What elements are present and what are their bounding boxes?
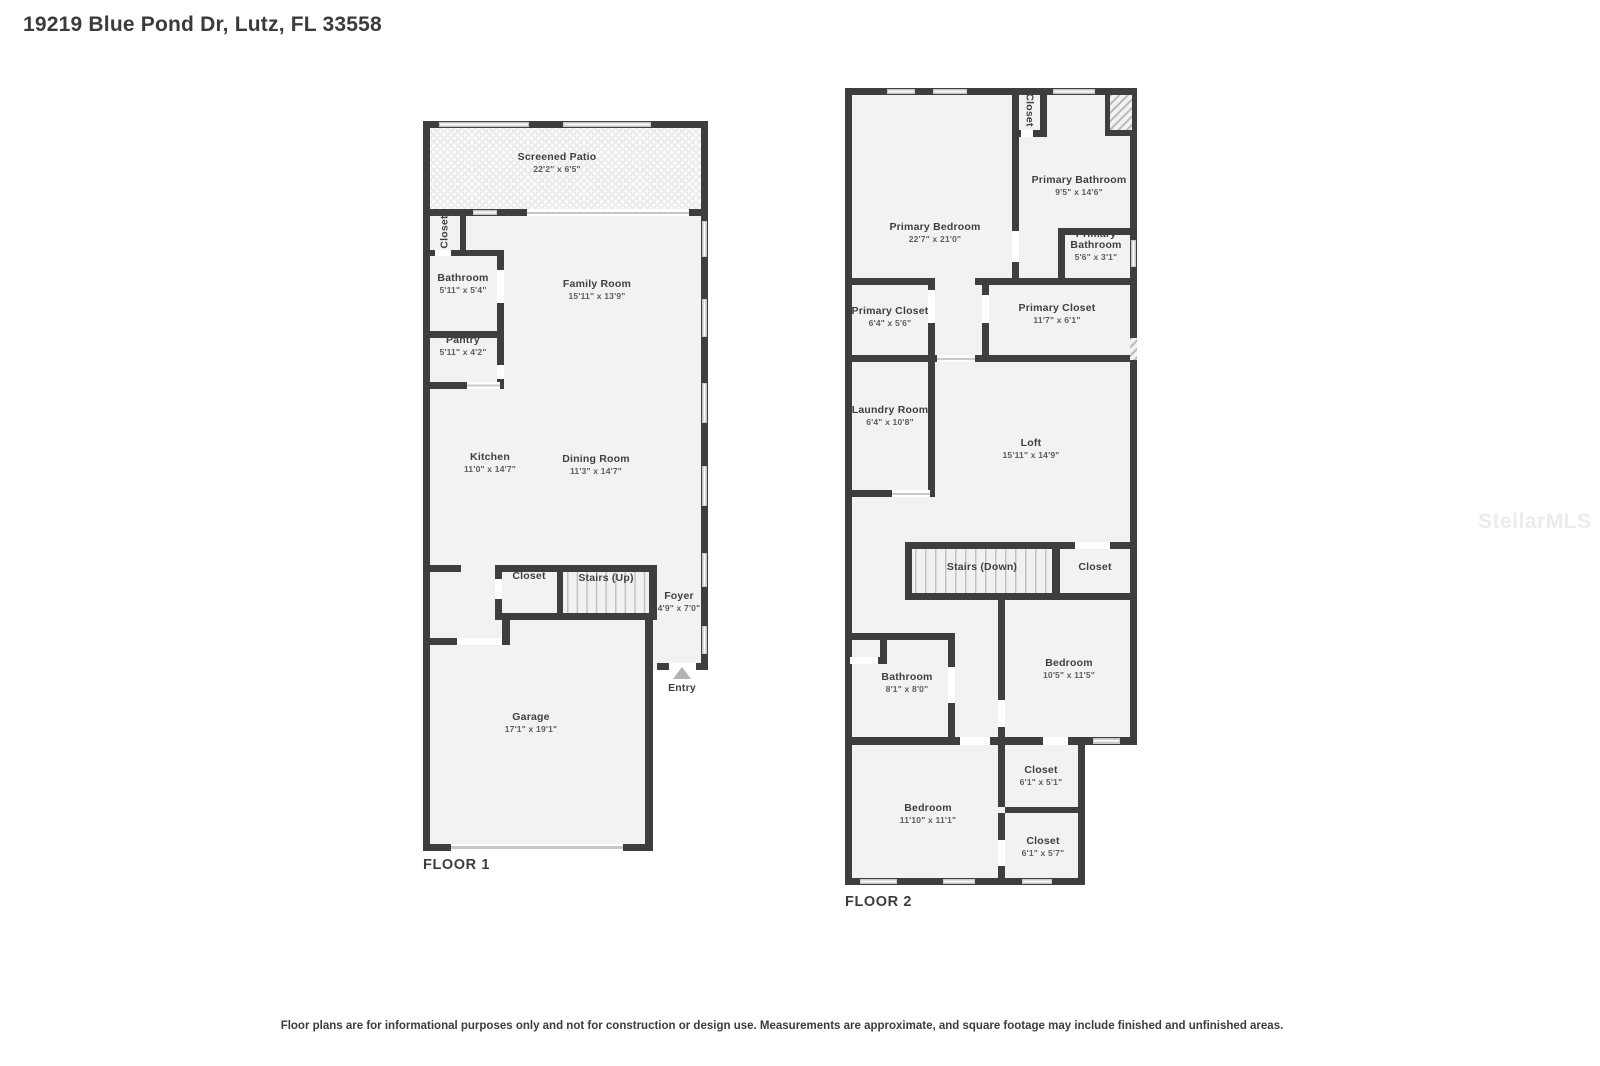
room-label-stairs-down: Stairs (Down) xyxy=(947,562,1017,573)
floor2-title: FLOOR 2 xyxy=(845,894,912,910)
room-label-bathroom-f1: Bathroom 5'11" x 5'4" xyxy=(437,273,488,295)
page-title: 19219 Blue Pond Dr, Lutz, FL 33558 xyxy=(23,13,382,37)
floor1-title: FLOOR 1 xyxy=(423,857,490,873)
shower-hatch xyxy=(1110,95,1132,130)
entry-arrow-icon xyxy=(673,667,691,679)
room-label-bathroom-f2: Bathroom 8'1" x 8'0" xyxy=(881,672,932,694)
room-label-closet-top: Closet xyxy=(1024,93,1035,126)
room-label-loft: Loft 15'11" x 14'9" xyxy=(1003,438,1060,460)
room-label-primary-bathroom: Primary Bathroom 9'5" x 14'6" xyxy=(1032,175,1127,197)
room-label-bedroom-bottom: Bedroom 11'10" x 11'1" xyxy=(900,803,957,825)
wall-hatch-strip xyxy=(1130,338,1137,360)
room-label-foyer: Foyer 4'9" x 7'0" xyxy=(658,591,701,613)
room-label-screened-patio: Screened Patio 22'2" x 6'5" xyxy=(518,152,597,174)
room-label-dining-room: Dining Room 11'3" x 14'7" xyxy=(562,454,630,476)
room-label-closet-mid: Closet xyxy=(1078,562,1111,573)
floor2-room-fill xyxy=(845,88,1137,885)
disclaimer-text: Floor plans are for informational purpos… xyxy=(0,1020,1564,1032)
room-label-closet-stairs: Closet xyxy=(512,571,545,582)
room-label-primary-closet-right: Primary Closet 11'7" x 6'1" xyxy=(1019,303,1096,325)
stellar-mls-watermark: StellarMLS xyxy=(1478,510,1592,534)
room-label-kitchen: Kitchen 11'0" x 14'7" xyxy=(464,452,516,474)
floor-plan-page: { "page_title": "19219 Blue Pond Dr, Lut… xyxy=(0,0,1600,1066)
entry-label: Entry xyxy=(668,683,696,694)
floor1-drawing xyxy=(423,121,708,881)
room-label-pantry: Pantry 5'11" x 4'2" xyxy=(439,335,486,357)
room-label-closet-51: Closet 6'1" x 5'1" xyxy=(1020,765,1063,787)
room-label-laundry-room: Laundry Room 6'4" x 10'8" xyxy=(852,405,929,427)
room-label-primary-bathroom-small: Primary Bathroom 5'6" x 3'1" xyxy=(1064,229,1128,262)
floor2-drawing xyxy=(845,88,1137,918)
room-label-family-room: Family Room 15'11" x 13'9" xyxy=(563,279,631,301)
room-label-bedroom-mid: Bedroom 10'5" x 11'5" xyxy=(1043,658,1095,680)
room-label-closet-patio: Closet xyxy=(440,215,451,248)
room-label-primary-bedroom: Primary Bedroom 22'7" x 21'0" xyxy=(889,222,980,244)
room-label-primary-closet-left: Primary Closet 6'4" x 5'6" xyxy=(852,306,929,328)
room-label-stairs-up: Stairs (Up) xyxy=(578,573,633,584)
room-label-garage: Garage 17'1" x 19'1" xyxy=(505,712,558,734)
room-label-closet-57: Closet 6'1" x 5'7" xyxy=(1022,836,1065,858)
floor1-plan: Screened Patio 22'2" x 6'5" Closet Bathr… xyxy=(423,121,708,891)
floor2-plan: Primary Bedroom 22'7" x 21'0" Closet Pri… xyxy=(845,88,1137,928)
